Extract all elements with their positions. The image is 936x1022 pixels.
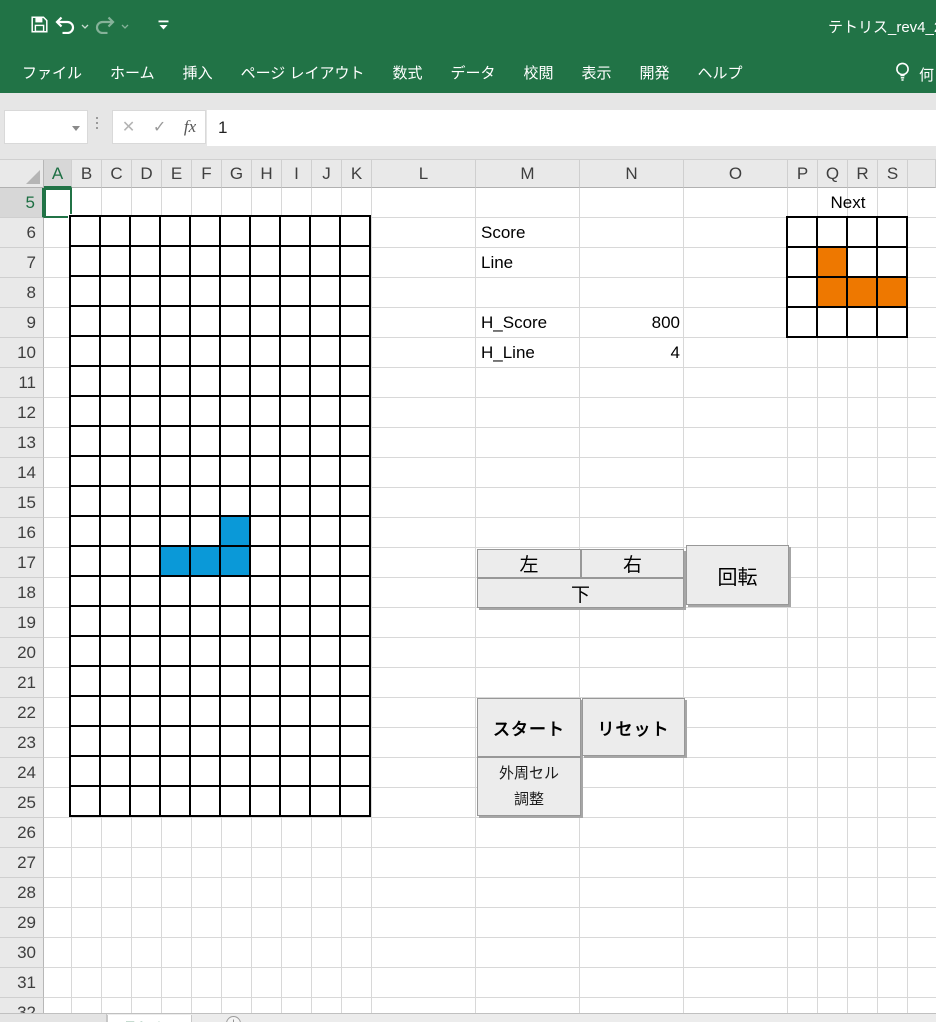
board-cell: [250, 366, 280, 396]
board-cell: [190, 216, 220, 246]
board-cell: [280, 546, 310, 576]
next-cell: [817, 277, 847, 307]
tetris-board: [69, 215, 371, 817]
chevron-down-icon[interactable]: [78, 14, 92, 40]
board-cell: [250, 516, 280, 546]
board-cell: [130, 786, 160, 816]
board-cell: [160, 786, 190, 816]
board-cell: [310, 366, 340, 396]
ribbon-tab[interactable]: ページ レイアウト: [227, 55, 379, 93]
adjust-cells-button[interactable]: 外周セル 調整: [477, 757, 581, 816]
board-cell: [310, 756, 340, 786]
add-sheet-icon: +: [230, 1017, 236, 1022]
board-cell: [220, 576, 250, 606]
board-cell: [250, 696, 280, 726]
board-cell: [130, 696, 160, 726]
row-header[interactable]: 29: [0, 908, 44, 938]
board-cell: [70, 366, 100, 396]
board-cell: [340, 426, 370, 456]
board-cell: [160, 726, 190, 756]
board-cell: [220, 246, 250, 276]
board-cell: [280, 456, 310, 486]
board-cell: [220, 696, 250, 726]
board-cell: [250, 606, 280, 636]
board-cell: [250, 786, 280, 816]
board-cell: [280, 786, 310, 816]
row-header[interactable]: 19: [0, 608, 44, 638]
board-cell: [130, 636, 160, 666]
check-icon[interactable]: ✓: [153, 117, 166, 137]
row-header[interactable]: 24: [0, 758, 44, 788]
board-cell: [310, 786, 340, 816]
board-cell: [280, 606, 310, 636]
board-cell: [70, 636, 100, 666]
gridline: [44, 997, 936, 998]
board-cell: [160, 456, 190, 486]
row-header[interactable]: 27: [0, 848, 44, 878]
board-cell: [70, 666, 100, 696]
board-cell: [130, 726, 160, 756]
column-header[interactable]: G: [222, 160, 252, 188]
board-cell: [190, 246, 220, 276]
board-cell: [250, 546, 280, 576]
down-button[interactable]: 下: [477, 578, 684, 608]
board-cell: [190, 486, 220, 516]
board-cell: [220, 786, 250, 816]
column-header[interactable]: N: [580, 160, 684, 188]
gridline: [475, 188, 476, 1013]
select-all-icon: [26, 170, 40, 184]
board-cell: [280, 396, 310, 426]
board-cell: [70, 336, 100, 366]
board-cell: [280, 636, 310, 666]
board-cell: [100, 756, 130, 786]
board-cell: [190, 756, 220, 786]
board-cell: [100, 696, 130, 726]
score-label: Score: [481, 218, 577, 248]
formula-bar-region: ✕ ✓ fx 1: [0, 93, 936, 160]
board-cell: [100, 336, 130, 366]
adjust-cells-line2: 調整: [514, 787, 544, 813]
next-cell: [877, 217, 907, 247]
next-cell: [817, 307, 847, 337]
board-cell: [160, 576, 190, 606]
save-button[interactable]: [26, 14, 52, 40]
board-cell: [190, 606, 220, 636]
save-icon: [30, 15, 49, 39]
board-cell: [70, 786, 100, 816]
formula-bar-separator: [96, 117, 98, 129]
board-cell: [220, 546, 250, 576]
board-cell: [70, 246, 100, 276]
column-header[interactable]: M: [476, 160, 580, 188]
board-cell: [160, 276, 190, 306]
next-cell: [847, 277, 877, 307]
board-cell: [160, 666, 190, 696]
row-header[interactable]: 9: [0, 308, 44, 338]
column-header[interactable]: I: [282, 160, 312, 188]
board-cell: [100, 306, 130, 336]
sheet-nav-zone: [0, 1014, 107, 1022]
board-cell: [220, 366, 250, 396]
board-cell: [190, 726, 220, 756]
board-cell: [100, 726, 130, 756]
sheet-tab-label: テトリス: [123, 1017, 175, 1022]
board-cell: [340, 516, 370, 546]
next-cell: [877, 277, 907, 307]
board-cell: [220, 486, 250, 516]
board-cell: [310, 636, 340, 666]
row-header[interactable]: 18: [0, 578, 44, 608]
row-header[interactable]: 28: [0, 878, 44, 908]
row-header[interactable]: 31: [0, 968, 44, 998]
board-cell: [250, 756, 280, 786]
board-cell: [220, 216, 250, 246]
board-cell: [130, 366, 160, 396]
board-cell: [160, 336, 190, 366]
board-cell: [70, 606, 100, 636]
board-cell: [280, 216, 310, 246]
row-header[interactable]: 6: [0, 218, 44, 248]
board-cell: [160, 246, 190, 276]
board-cell: [220, 606, 250, 636]
tell-me-text: 何: [919, 64, 934, 85]
board-cell: [280, 276, 310, 306]
board-cell: [220, 756, 250, 786]
next-label: Next: [818, 188, 878, 218]
board-cell: [280, 306, 310, 336]
redo-icon: [94, 16, 116, 39]
column-header[interactable]: A: [44, 160, 72, 188]
board-cell: [220, 516, 250, 546]
ribbon-tab[interactable]: ホーム: [96, 55, 169, 93]
row-header[interactable]: 13: [0, 428, 44, 458]
add-sheet-button[interactable]: +: [226, 1016, 241, 1022]
board-cell: [280, 486, 310, 516]
board-cell: [130, 426, 160, 456]
board-cell: [100, 576, 130, 606]
column-header[interactable]: S: [878, 160, 908, 188]
board-cell: [70, 546, 100, 576]
customize-qat-icon: [157, 18, 170, 36]
gridline: [44, 967, 936, 968]
ribbon-tab-row: ファイルホーム挿入ページ レイアウト数式データ校閲表示開発ヘルプ: [0, 55, 936, 93]
board-cell: [340, 366, 370, 396]
board-cell: [160, 366, 190, 396]
board-cell: [160, 756, 190, 786]
board-cell: [310, 726, 340, 756]
column-header[interactable]: F: [192, 160, 222, 188]
high-line-value: 4: [580, 338, 680, 368]
sheet-tab-active[interactable]: テトリス: [107, 1015, 192, 1022]
ribbon-tab[interactable]: ファイル: [8, 55, 96, 93]
row-header[interactable]: 10: [0, 338, 44, 368]
excel-window: テトリス_rev4_2 ファイルホーム挿入ページ レイアウト数式データ校閲表示開…: [0, 0, 936, 1022]
board-cell: [340, 486, 370, 516]
board-cell: [340, 336, 370, 366]
board-cell: [310, 576, 340, 606]
board-cell: [190, 426, 220, 456]
column-header[interactable]: B: [72, 160, 102, 188]
column-header[interactable]: K: [342, 160, 372, 188]
start-button[interactable]: スタート: [477, 698, 581, 757]
column-header[interactable]: J: [312, 160, 342, 188]
undo-button[interactable]: [52, 14, 78, 40]
next-cell: [817, 247, 847, 277]
board-cell: [190, 696, 220, 726]
board-cell: [220, 396, 250, 426]
row-header[interactable]: 7: [0, 248, 44, 278]
board-cell: [340, 276, 370, 306]
board-cell: [70, 756, 100, 786]
board-cell: [70, 726, 100, 756]
row-header[interactable]: 11: [0, 368, 44, 398]
board-cell: [250, 216, 280, 246]
reset-button[interactable]: リセット: [582, 698, 685, 756]
board-cell: [70, 486, 100, 516]
board-cell: [100, 366, 130, 396]
board-cell: [130, 546, 160, 576]
board-cell: [310, 516, 340, 546]
ribbon-tab[interactable]: ヘルプ: [684, 55, 757, 93]
board-cell: [280, 756, 310, 786]
board-cell: [100, 516, 130, 546]
board-cell: [160, 606, 190, 636]
redo-button[interactable]: [92, 14, 118, 40]
board-cell: [220, 336, 250, 366]
column-header[interactable]: H: [252, 160, 282, 188]
board-cell: [310, 456, 340, 486]
board-cell: [100, 396, 130, 426]
board-cell: [190, 366, 220, 396]
board-cell: [220, 726, 250, 756]
next-cell: [787, 247, 817, 277]
ribbon-tab[interactable]: データ: [436, 55, 509, 93]
board-cell: [310, 276, 340, 306]
gridline: [44, 907, 936, 908]
board-cell: [160, 216, 190, 246]
board-cell: [70, 276, 100, 306]
quick-access-toolbar: [26, 14, 176, 40]
fx-icon[interactable]: fx: [184, 117, 196, 137]
board-cell: [160, 396, 190, 426]
board-cell: [310, 486, 340, 516]
row-header[interactable]: 25: [0, 788, 44, 818]
undo-icon: [54, 16, 76, 39]
row-header[interactable]: 5: [0, 188, 44, 218]
sheet-tab-bar: テトリス +: [0, 1013, 936, 1022]
row-header[interactable]: 15: [0, 488, 44, 518]
board-cell: [160, 546, 190, 576]
board-cell: [160, 426, 190, 456]
board-cell: [250, 726, 280, 756]
board-cell: [280, 366, 310, 396]
board-cell: [100, 276, 130, 306]
ribbon-tab[interactable]: 校閲: [510, 55, 568, 93]
board-cell: [130, 576, 160, 606]
board-cell: [100, 246, 130, 276]
adjust-cells-line1: 外周セル: [499, 761, 559, 787]
window-title: テトリス_rev4_2: [828, 16, 936, 37]
board-cell: [70, 696, 100, 726]
next-cell: [847, 217, 877, 247]
board-cell: [310, 546, 340, 576]
row-header[interactable]: 17: [0, 548, 44, 578]
board-cell: [250, 456, 280, 486]
ribbon-tab[interactable]: 表示: [568, 55, 626, 93]
board-cell: [130, 756, 160, 786]
next-cell: [847, 307, 877, 337]
board-cell: [310, 696, 340, 726]
board-cell: [220, 426, 250, 456]
board-cell: [190, 546, 220, 576]
next-cell: [787, 307, 817, 337]
row-header[interactable]: 8: [0, 278, 44, 308]
next-cell: [877, 307, 907, 337]
ribbon-tab[interactable]: 開発: [626, 55, 684, 93]
board-cell: [250, 276, 280, 306]
row-header[interactable]: 16: [0, 518, 44, 548]
board-cell: [310, 336, 340, 366]
board-cell: [250, 486, 280, 516]
board-cell: [190, 276, 220, 306]
cell-selection: [44, 188, 72, 218]
board-cell: [70, 426, 100, 456]
row-header[interactable]: 12: [0, 398, 44, 428]
row-header[interactable]: 14: [0, 458, 44, 488]
line-label: Line: [481, 248, 577, 278]
board-cell: [340, 246, 370, 276]
column-header[interactable]: [908, 160, 936, 188]
board-cell: [220, 456, 250, 486]
board-cell: [70, 456, 100, 486]
board-cell: [130, 396, 160, 426]
board-cell: [130, 606, 160, 636]
board-cell: [220, 636, 250, 666]
chevron-down-icon[interactable]: [118, 14, 132, 40]
board-cell: [280, 726, 310, 756]
board-cell: [250, 576, 280, 606]
select-all-button[interactable]: [0, 160, 44, 188]
next-cell: [847, 247, 877, 277]
board-cell: [340, 606, 370, 636]
board-cell: [250, 306, 280, 336]
column-header[interactable]: Q: [818, 160, 848, 188]
board-cell: [280, 696, 310, 726]
gridline: [44, 847, 936, 848]
board-cell: [340, 456, 370, 486]
board-cell: [220, 666, 250, 696]
row-header[interactable]: 20: [0, 638, 44, 668]
board-cell: [70, 576, 100, 606]
board-cell: [280, 426, 310, 456]
board-cell: [190, 306, 220, 336]
board-cell: [160, 696, 190, 726]
board-cell: [340, 666, 370, 696]
board-cell: [130, 486, 160, 516]
left-button[interactable]: 左: [477, 549, 581, 578]
column-header[interactable]: D: [132, 160, 162, 188]
ribbon-tab[interactable]: 挿入: [169, 55, 227, 93]
board-cell: [130, 276, 160, 306]
board-cell: [340, 726, 370, 756]
board-cell: [130, 516, 160, 546]
board-cell: [70, 516, 100, 546]
column-header[interactable]: C: [102, 160, 132, 188]
board-cell: [190, 786, 220, 816]
next-cell: [787, 277, 817, 307]
cancel-icon[interactable]: ✕: [122, 117, 135, 137]
row-header[interactable]: 30: [0, 938, 44, 968]
row-header[interactable]: 23: [0, 728, 44, 758]
board-cell: [70, 306, 100, 336]
right-button[interactable]: 右: [581, 549, 684, 578]
board-cell: [130, 456, 160, 486]
name-box[interactable]: [4, 110, 88, 144]
formula-buttons: ✕ ✓ fx: [112, 110, 206, 144]
board-cell: [250, 426, 280, 456]
board-cell: [250, 666, 280, 696]
board-cell: [130, 306, 160, 336]
column-header[interactable]: O: [684, 160, 788, 188]
row-header[interactable]: 21: [0, 668, 44, 698]
formula-input[interactable]: 1: [207, 110, 936, 146]
gridline: [44, 817, 936, 818]
lightbulb-icon: [893, 60, 912, 89]
board-cell: [190, 336, 220, 366]
name-box-dropdown-icon[interactable]: [72, 126, 80, 131]
board-cell: [340, 546, 370, 576]
row-header[interactable]: 22: [0, 698, 44, 728]
next-cell: [817, 217, 847, 247]
board-cell: [100, 666, 130, 696]
board-cell: [280, 246, 310, 276]
customize-qat-button[interactable]: [150, 14, 176, 40]
rotate-button[interactable]: 回転: [686, 545, 789, 605]
board-cell: [160, 636, 190, 666]
board-cell: [220, 276, 250, 306]
board-cell: [340, 786, 370, 816]
titlebar: テトリス_rev4_2: [0, 0, 936, 55]
column-header[interactable]: P: [788, 160, 818, 188]
board-cell: [100, 636, 130, 666]
ribbon-tab[interactable]: 数式: [378, 55, 436, 93]
column-header[interactable]: R: [848, 160, 878, 188]
board-cell: [280, 516, 310, 546]
board-cell: [160, 306, 190, 336]
board-cell: [100, 786, 130, 816]
column-header[interactable]: E: [162, 160, 192, 188]
tell-me-button[interactable]: 何: [893, 60, 934, 89]
board-cell: [190, 456, 220, 486]
board-cell: [190, 636, 220, 666]
board-cell: [310, 216, 340, 246]
board-cell: [310, 246, 340, 276]
board-cell: [130, 336, 160, 366]
board-cell: [220, 306, 250, 336]
board-cell: [340, 216, 370, 246]
board-cell: [250, 336, 280, 366]
board-cell: [100, 216, 130, 246]
board-cell: [70, 216, 100, 246]
board-cell: [250, 396, 280, 426]
row-header[interactable]: 26: [0, 818, 44, 848]
column-header[interactable]: L: [372, 160, 476, 188]
board-cell: [280, 576, 310, 606]
board-cell: [160, 486, 190, 516]
board-cell: [160, 516, 190, 546]
board-cell: [310, 396, 340, 426]
